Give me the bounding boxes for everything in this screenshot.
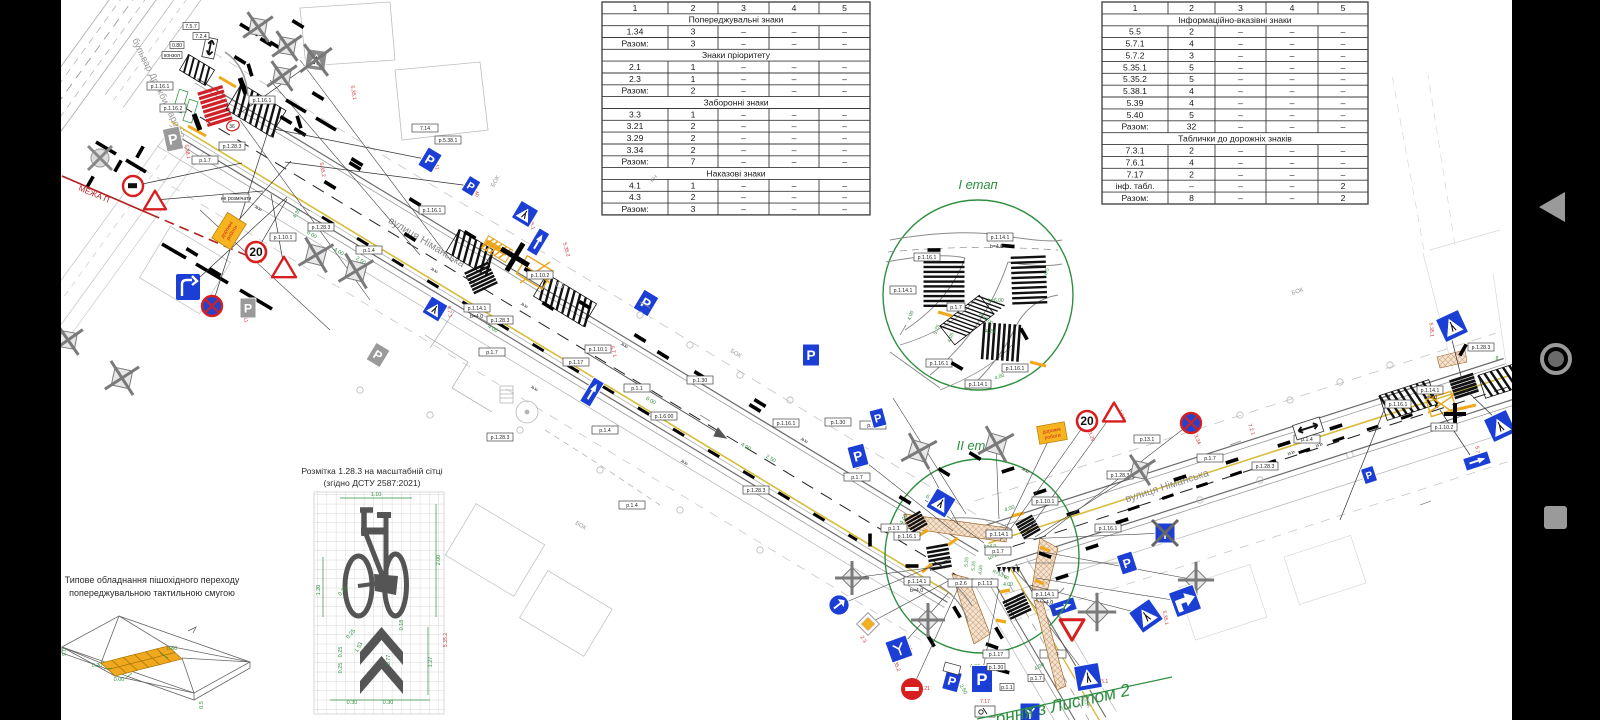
svg-text:1.27: 1.27 bbox=[428, 657, 434, 668]
svg-text:Типове обладнання пішохідного: Типове обладнання пішохідного переходу bbox=[65, 575, 240, 585]
svg-text:Наказові знаки: Наказові знаки bbox=[706, 169, 765, 179]
svg-text:р.1.16.2: р.1.16.2 bbox=[164, 106, 183, 112]
svg-text:P: P bbox=[976, 670, 987, 689]
svg-text:–: – bbox=[1290, 110, 1295, 120]
svg-text:3.3: 3.3 bbox=[629, 109, 641, 119]
svg-text:р.1.17: р.1.17 bbox=[569, 360, 584, 366]
svg-text:–: – bbox=[842, 145, 847, 155]
svg-text:–: – bbox=[741, 74, 746, 84]
svg-text:5.35.2: 5.35.2 bbox=[1123, 74, 1147, 84]
svg-text:р.1.16.1: р.1.16.1 bbox=[1389, 402, 1408, 408]
svg-text:р.1.28.3: р.1.28.3 bbox=[747, 488, 766, 494]
svg-text:1: 1 bbox=[691, 62, 696, 72]
svg-text:5: 5 bbox=[1189, 74, 1194, 84]
svg-text:–: – bbox=[842, 27, 847, 37]
svg-text:р.1.14.1: р.1.14.1 bbox=[991, 235, 1010, 241]
svg-text:2: 2 bbox=[691, 3, 696, 13]
svg-text:–: – bbox=[1290, 27, 1295, 37]
svg-text:–: – bbox=[1238, 86, 1243, 96]
svg-text:–: – bbox=[1341, 51, 1346, 61]
svg-text:2.1: 2.1 bbox=[629, 62, 641, 72]
svg-text:–: – bbox=[741, 145, 746, 155]
svg-text:7: 7 bbox=[691, 157, 696, 167]
svg-text:9.0: 9.0 bbox=[62, 648, 68, 656]
svg-text:–: – bbox=[1238, 62, 1243, 72]
svg-text:р.1.10.1: р.1.10.1 bbox=[589, 347, 608, 353]
svg-text:–: – bbox=[741, 180, 746, 190]
svg-text:Попереджувальні знаки: Попереджувальні знаки bbox=[689, 15, 784, 25]
svg-text:–: – bbox=[842, 38, 847, 48]
svg-text:3: 3 bbox=[691, 27, 696, 37]
svg-text:5: 5 bbox=[842, 3, 847, 13]
svg-text:р.1.7: р.1.7 bbox=[486, 350, 498, 356]
svg-text:р.1.10.2: р.1.10.2 bbox=[1435, 425, 1454, 431]
svg-text:–: – bbox=[842, 86, 847, 96]
svg-text:–: – bbox=[741, 133, 746, 143]
svg-text:р.13.1: р.13.1 bbox=[1140, 437, 1155, 443]
svg-text:4.25: 4.25 bbox=[985, 329, 995, 335]
svg-text:р.1.10.2: р.1.10.2 bbox=[531, 273, 550, 279]
svg-text:р.1.7: р.1.7 bbox=[1030, 676, 1042, 682]
svg-text:20: 20 bbox=[1080, 414, 1094, 428]
svg-text:2: 2 bbox=[1341, 193, 1346, 203]
svg-text:Разом:: Разом: bbox=[1121, 193, 1148, 203]
svg-text:3: 3 bbox=[691, 38, 696, 48]
svg-text:5.39: 5.39 bbox=[1127, 98, 1144, 108]
svg-text:0.25: 0.25 bbox=[338, 647, 344, 658]
svg-text:3.29: 3.29 bbox=[627, 133, 644, 143]
svg-text:Разом:: Разом: bbox=[621, 38, 648, 48]
svg-text:I етап: I етап bbox=[958, 177, 997, 192]
svg-text:2: 2 bbox=[1189, 3, 1194, 13]
svg-text:–: – bbox=[1290, 62, 1295, 72]
svg-text:р.1.30: р.1.30 bbox=[831, 420, 846, 426]
svg-text:5.35.1: 5.35.1 bbox=[1427, 322, 1434, 337]
svg-text:–: – bbox=[842, 74, 847, 84]
svg-text:Разом:: Разом: bbox=[621, 157, 648, 167]
svg-text:–: – bbox=[792, 145, 797, 155]
svg-text:0.77: 0.77 bbox=[386, 655, 392, 666]
svg-text:7.2.4: 7.2.4 bbox=[195, 34, 207, 40]
svg-text:3: 3 bbox=[1238, 3, 1243, 13]
svg-text:5.7.2: 5.7.2 bbox=[1125, 51, 1144, 61]
svg-text:–: – bbox=[1341, 62, 1346, 72]
svg-text:Разом:: Разом: bbox=[621, 204, 648, 214]
svg-text:b=4,0: b=4,0 bbox=[910, 588, 923, 594]
svg-text:р.1.14.1: р.1.14.1 bbox=[969, 382, 988, 388]
svg-text:–: – bbox=[792, 74, 797, 84]
svg-text:–: – bbox=[792, 86, 797, 96]
svg-text:7.17: 7.17 bbox=[980, 699, 990, 705]
svg-text:b=4.0: b=4.0 bbox=[1424, 395, 1437, 401]
svg-text:0.25: 0.25 bbox=[338, 663, 344, 674]
svg-text:2: 2 bbox=[691, 192, 696, 202]
svg-text:–: – bbox=[842, 204, 847, 214]
svg-text:–: – bbox=[1238, 98, 1243, 108]
svg-text:4: 4 bbox=[1189, 157, 1194, 167]
svg-text:2.3: 2.3 bbox=[629, 74, 641, 84]
svg-text:р.1.16.1: р.1.16.1 bbox=[918, 255, 937, 261]
svg-text:36: 36 bbox=[229, 124, 235, 130]
svg-text:р.1.7: р.1.7 bbox=[950, 305, 962, 311]
svg-text:–: – bbox=[1290, 122, 1295, 132]
svg-text:р.1.14.1: р.1.14.1 bbox=[1421, 388, 1440, 394]
svg-text:–: – bbox=[1290, 169, 1295, 179]
svg-text:5.40: 5.40 bbox=[1127, 110, 1144, 120]
svg-text:5: 5 bbox=[1341, 3, 1346, 13]
svg-text:–: – bbox=[1290, 74, 1295, 84]
svg-text:5: 5 bbox=[1189, 110, 1194, 120]
svg-text:2.00: 2.00 bbox=[436, 555, 442, 566]
svg-text:–: – bbox=[1238, 39, 1243, 49]
svg-text:–: – bbox=[842, 157, 847, 167]
svg-text:Разом:: Разом: bbox=[621, 86, 648, 96]
svg-text:конзол: конзол bbox=[164, 53, 180, 59]
svg-text:1: 1 bbox=[691, 74, 696, 84]
svg-text:р.1.16.1: р.1.16.1 bbox=[777, 421, 796, 427]
svg-text:р.1.7: р.1.7 bbox=[851, 475, 863, 481]
svg-text:0.80: 0.80 bbox=[172, 43, 182, 49]
svg-text:5.25: 5.25 bbox=[964, 557, 971, 567]
svg-text:–: – bbox=[1290, 98, 1295, 108]
svg-text:0.30: 0.30 bbox=[383, 700, 394, 706]
svg-text:–: – bbox=[1290, 146, 1295, 156]
svg-text:7.3.1: 7.3.1 bbox=[1125, 146, 1144, 156]
svg-text:7.6.1: 7.6.1 bbox=[1125, 157, 1144, 167]
svg-text:Знаки пріоритету: Знаки пріоритету bbox=[702, 50, 771, 60]
svg-text:–: – bbox=[1341, 169, 1346, 179]
svg-text:р.1.28.3: р.1.28.3 bbox=[312, 225, 331, 231]
svg-text:1: 1 bbox=[691, 109, 696, 119]
svg-text:4.05: 4.05 bbox=[978, 565, 985, 575]
svg-text:р.1.14.1: р.1.14.1 bbox=[908, 579, 927, 585]
svg-text:–: – bbox=[792, 157, 797, 167]
svg-text:–: – bbox=[792, 109, 797, 119]
svg-text:–: – bbox=[792, 204, 797, 214]
svg-text:Розмітка 1.28.3 на масштабній: Розмітка 1.28.3 на масштабній сітці bbox=[301, 466, 442, 476]
svg-text:р.1.16.1: р.1.16.1 bbox=[1006, 366, 1025, 372]
svg-text:–: – bbox=[741, 121, 746, 131]
svg-text:–: – bbox=[741, 38, 746, 48]
svg-text:р.1.30: р.1.30 bbox=[989, 665, 1004, 671]
svg-text:4.3: 4.3 bbox=[629, 192, 641, 202]
svg-text:–: – bbox=[1238, 146, 1243, 156]
svg-text:–: – bbox=[792, 180, 797, 190]
svg-text:–: – bbox=[741, 204, 746, 214]
svg-text:Разом:: Разом: bbox=[1121, 122, 1148, 132]
svg-text:2: 2 bbox=[691, 133, 696, 143]
svg-text:4.1: 4.1 bbox=[629, 180, 641, 190]
svg-text:–: – bbox=[1290, 157, 1295, 167]
svg-text:–: – bbox=[1238, 27, 1243, 37]
svg-text:32: 32 bbox=[1187, 122, 1197, 132]
svg-text:1: 1 bbox=[633, 3, 638, 13]
svg-text:P: P bbox=[244, 302, 252, 316]
svg-text:р.1.16.1: р.1.16.1 bbox=[423, 208, 442, 214]
svg-text:3: 3 bbox=[691, 204, 696, 214]
svg-text:4: 4 bbox=[792, 3, 797, 13]
svg-text:–: – bbox=[741, 109, 746, 119]
svg-text:–: – bbox=[1290, 39, 1295, 49]
svg-text:р.1.1: р.1.1 bbox=[1001, 685, 1013, 691]
svg-text:р.1.17: р.1.17 bbox=[989, 652, 1004, 658]
svg-text:1.34: 1.34 bbox=[627, 27, 644, 37]
svg-text:2: 2 bbox=[691, 121, 696, 131]
svg-text:р.1.28.3: р.1.28.3 bbox=[1472, 345, 1491, 351]
svg-text:–: – bbox=[1238, 110, 1243, 120]
svg-text:р.1.14.1: р.1.14.1 bbox=[1036, 592, 1055, 598]
svg-text:–: – bbox=[741, 62, 746, 72]
svg-text:–: – bbox=[1341, 146, 1346, 156]
svg-text:–: – bbox=[1238, 74, 1243, 84]
svg-text:2: 2 bbox=[1189, 146, 1194, 156]
svg-text:р.1.13: р.1.13 bbox=[978, 581, 993, 587]
svg-text:3: 3 bbox=[741, 3, 746, 13]
svg-text:P: P bbox=[806, 348, 815, 363]
svg-text:0.18: 0.18 bbox=[399, 620, 405, 631]
svg-text:р.1.30: р.1.30 bbox=[693, 378, 708, 384]
svg-text:3.21: 3.21 bbox=[627, 121, 644, 131]
svg-text:20: 20 bbox=[249, 245, 263, 259]
svg-text:5: 5 bbox=[1189, 62, 1194, 72]
svg-text:–: – bbox=[1238, 122, 1243, 132]
svg-text:–: – bbox=[1238, 193, 1243, 203]
svg-text:–: – bbox=[1290, 193, 1295, 203]
svg-text:р.1.1: р.1.1 bbox=[631, 386, 643, 392]
svg-text:4: 4 bbox=[1189, 39, 1194, 49]
svg-text:0.00: 0.00 bbox=[114, 677, 125, 683]
svg-text:р.1.16.1: р.1.16.1 bbox=[898, 534, 917, 540]
svg-text:–: – bbox=[1238, 169, 1243, 179]
svg-text:5.35.1: 5.35.1 bbox=[1123, 62, 1147, 72]
svg-text:–: – bbox=[741, 27, 746, 37]
svg-text:–: – bbox=[1189, 181, 1194, 191]
svg-text:4: 4 bbox=[1189, 86, 1194, 96]
svg-text:–: – bbox=[1341, 39, 1346, 49]
svg-text:р.1.7: р.1.7 bbox=[992, 549, 1004, 555]
svg-text:р.2.6: р.2.6 bbox=[955, 581, 967, 587]
svg-text:2: 2 bbox=[1341, 181, 1346, 191]
svg-text:4: 4 bbox=[1290, 3, 1295, 13]
svg-text:8: 8 bbox=[1496, 356, 1499, 362]
svg-text:р.1.6.00: р.1.6.00 bbox=[655, 414, 674, 420]
svg-text:7.17: 7.17 bbox=[1127, 169, 1144, 179]
svg-text:–: – bbox=[741, 192, 746, 202]
svg-text:7.5.7: 7.5.7 bbox=[185, 24, 197, 30]
svg-text:7.14: 7.14 bbox=[420, 126, 430, 132]
svg-text:–: – bbox=[741, 86, 746, 96]
svg-text:–: – bbox=[1341, 86, 1346, 96]
svg-text:попереджувальною тактильною см: попереджувальною тактильною смугою bbox=[69, 588, 235, 598]
svg-text:1: 1 bbox=[1133, 3, 1138, 13]
svg-text:–: – bbox=[1238, 51, 1243, 61]
svg-text:–: – bbox=[1341, 74, 1346, 84]
svg-text:р.1.10.1: р.1.10.1 bbox=[1036, 499, 1055, 505]
svg-text:2: 2 bbox=[1189, 27, 1194, 37]
svg-text:р.1.16.1: р.1.16.1 bbox=[253, 98, 272, 104]
svg-text:–: – bbox=[1341, 27, 1346, 37]
svg-text:–: – bbox=[792, 27, 797, 37]
svg-text:р.1.14.1: р.1.14.1 bbox=[468, 306, 487, 312]
svg-text:2: 2 bbox=[691, 86, 696, 96]
svg-text:–: – bbox=[1238, 181, 1243, 191]
svg-text:–: – bbox=[792, 121, 797, 131]
svg-text:0.5: 0.5 bbox=[199, 701, 205, 709]
svg-text:2: 2 bbox=[1189, 169, 1194, 179]
svg-text:–: – bbox=[1290, 86, 1295, 96]
svg-text:–: – bbox=[792, 192, 797, 202]
svg-text:–: – bbox=[792, 133, 797, 143]
svg-text:–: – bbox=[1341, 157, 1346, 167]
svg-text:Інформаційно-вказівні знаки: Інформаційно-вказівні знаки bbox=[1178, 15, 1291, 25]
svg-text:р.5.38.1: р.5.38.1 bbox=[439, 138, 458, 144]
svg-text:Таблички до дорожніх знаків: Таблички до дорожніх знаків bbox=[1178, 134, 1292, 144]
svg-text:–: – bbox=[842, 109, 847, 119]
svg-text:–: – bbox=[842, 62, 847, 72]
svg-text:р.1.28.3: р.1.28.3 bbox=[223, 144, 242, 150]
svg-text:р.1.14.1: р.1.14.1 bbox=[894, 288, 913, 294]
svg-text:5.5: 5.5 bbox=[1129, 27, 1141, 37]
svg-text:р.1.16.1: р.1.16.1 bbox=[1099, 526, 1118, 532]
svg-text:4.00: 4.00 bbox=[1003, 582, 1013, 588]
svg-text:(згідно ДСТУ 2587:2021): (згідно ДСТУ 2587:2021) bbox=[323, 478, 420, 488]
svg-text:–: – bbox=[842, 192, 847, 202]
svg-text:–: – bbox=[792, 38, 797, 48]
svg-text:р.1.10.1: р.1.10.1 bbox=[274, 235, 293, 241]
svg-text:–: – bbox=[1290, 181, 1295, 191]
svg-text:р.1.7: р.1.7 bbox=[1204, 456, 1216, 462]
svg-text:інф. табл.: інф. табл. bbox=[1115, 181, 1154, 191]
svg-text:–: – bbox=[842, 180, 847, 190]
svg-text:3: 3 bbox=[1189, 51, 1194, 61]
svg-text:р.1.16.1: р.1.16.1 bbox=[151, 84, 170, 90]
svg-text:Заборонні знаки: Заборонні знаки bbox=[703, 98, 768, 108]
svg-text:b=4.0: b=4.0 bbox=[990, 244, 1003, 250]
svg-text:2: 2 bbox=[691, 145, 696, 155]
svg-text:–: – bbox=[1341, 98, 1346, 108]
svg-text:р.1.28.3: р.1.28.3 bbox=[491, 318, 510, 324]
svg-text:8: 8 bbox=[1189, 193, 1194, 203]
svg-text:–: – bbox=[842, 133, 847, 143]
svg-text:5.7.1: 5.7.1 bbox=[1125, 39, 1144, 49]
svg-text:–: – bbox=[792, 62, 797, 72]
svg-text:0.30: 0.30 bbox=[347, 700, 358, 706]
svg-text:р.1.16.1: р.1.16.1 bbox=[930, 361, 949, 367]
svg-text:–: – bbox=[1290, 51, 1295, 61]
svg-text:0.60: 0.60 bbox=[167, 646, 178, 652]
svg-text:р.1.4: р.1.4 bbox=[626, 503, 638, 509]
svg-text:–: – bbox=[842, 121, 847, 131]
svg-text:1.20: 1.20 bbox=[316, 585, 322, 596]
svg-text:р.1.28.3: р.1.28.3 bbox=[1256, 464, 1275, 470]
svg-text:не розмічати: не розмічати bbox=[221, 196, 252, 202]
svg-text:р.1.4: р.1.4 bbox=[363, 248, 375, 254]
svg-text:р.1.4: р.1.4 bbox=[599, 428, 611, 434]
svg-text:0.20: 0.20 bbox=[92, 663, 103, 669]
svg-text:р.1.28.3: р.1.28.3 bbox=[491, 435, 510, 441]
svg-text:–: – bbox=[1341, 122, 1346, 132]
svg-text:–: – bbox=[1238, 157, 1243, 167]
svg-text:р.1.1: р.1.1 bbox=[888, 526, 900, 532]
svg-text:b=6.00: b=6.00 bbox=[988, 298, 1004, 304]
svg-text:5.38.1: 5.38.1 bbox=[1123, 86, 1147, 96]
svg-text:4: 4 bbox=[1189, 98, 1194, 108]
svg-text:–: – bbox=[741, 157, 746, 167]
svg-text:р.1.7: р.1.7 bbox=[199, 158, 211, 164]
svg-text:3.34: 3.34 bbox=[627, 145, 644, 155]
svg-text:1: 1 bbox=[691, 180, 696, 190]
svg-text:р.1.14.1: р.1.14.1 bbox=[990, 532, 1009, 538]
svg-text:–: – bbox=[1341, 110, 1346, 120]
svg-text:5.25: 5.25 bbox=[971, 561, 978, 571]
svg-text:1.10: 1.10 bbox=[371, 492, 382, 498]
